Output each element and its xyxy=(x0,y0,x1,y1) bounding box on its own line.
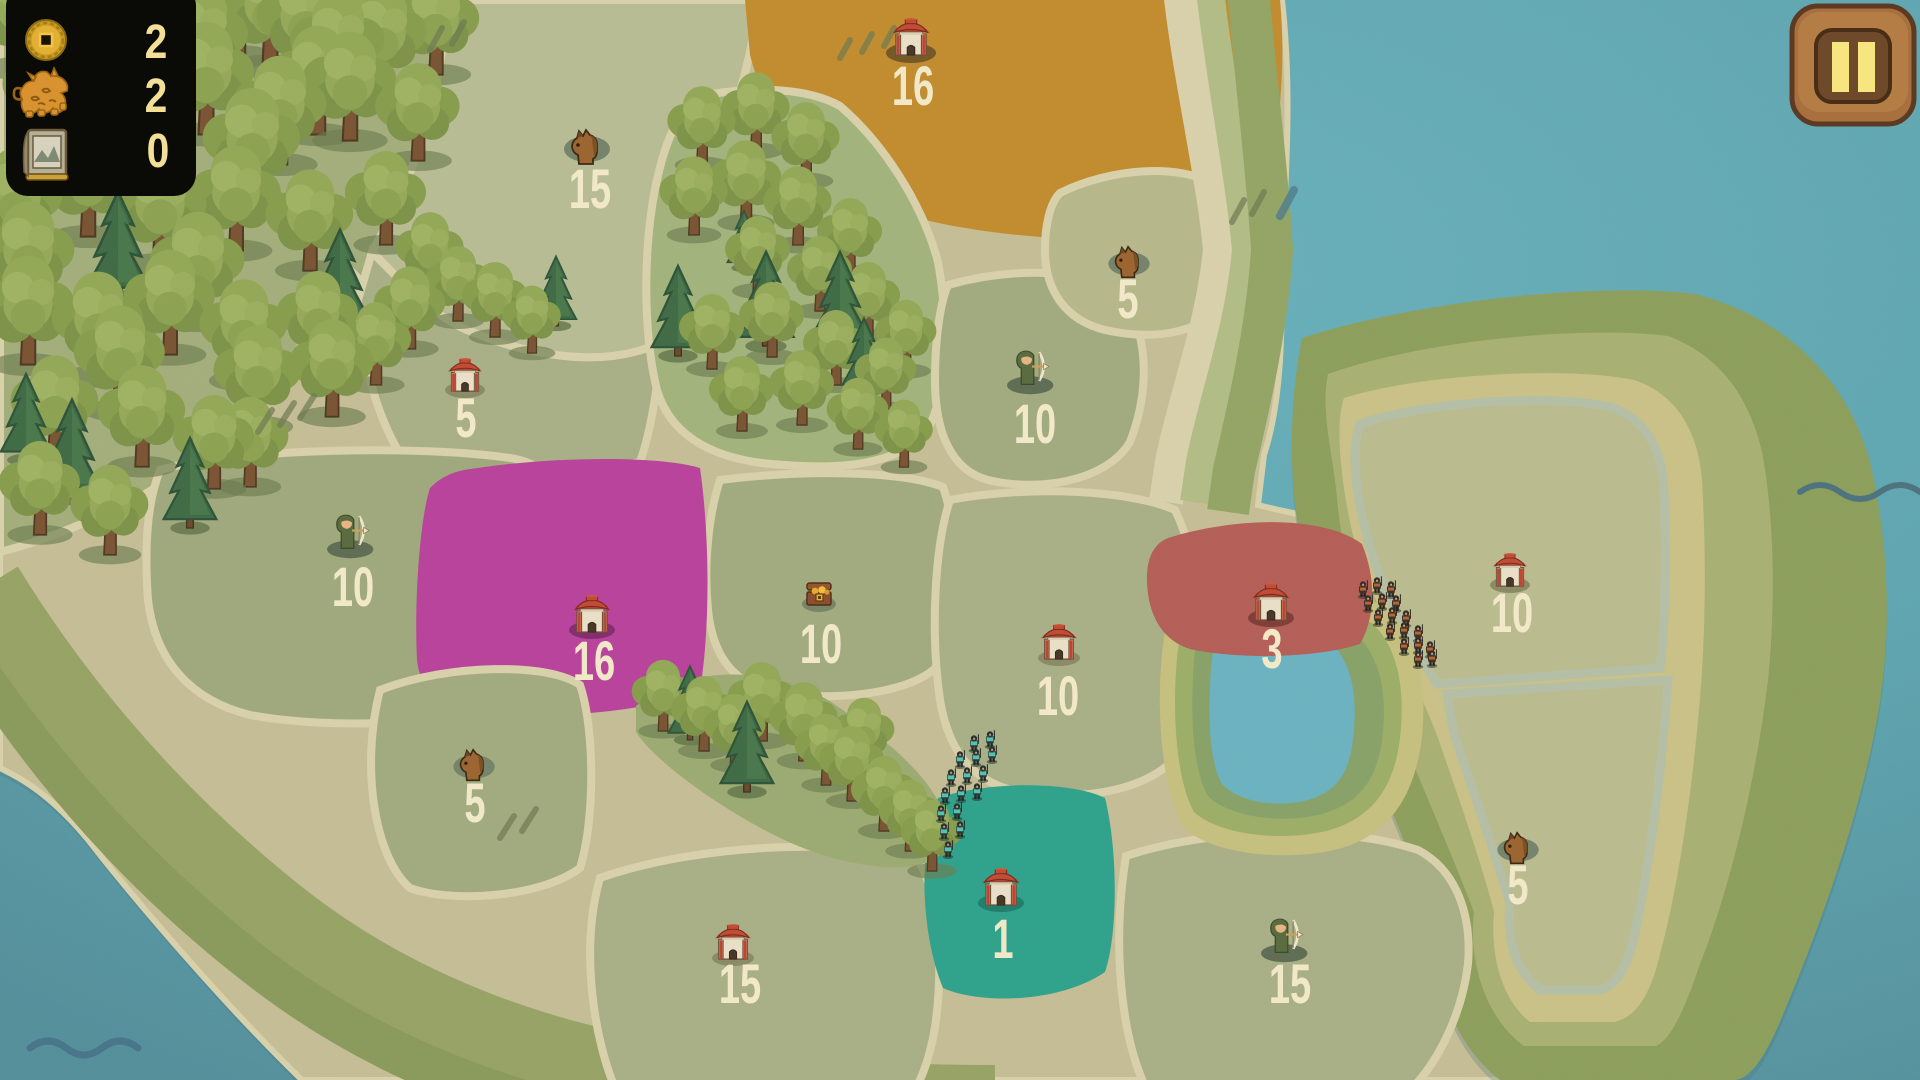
svg-text:0: 0 xyxy=(147,125,170,178)
svg-text:2: 2 xyxy=(145,16,168,69)
svg-text:2: 2 xyxy=(145,70,168,123)
